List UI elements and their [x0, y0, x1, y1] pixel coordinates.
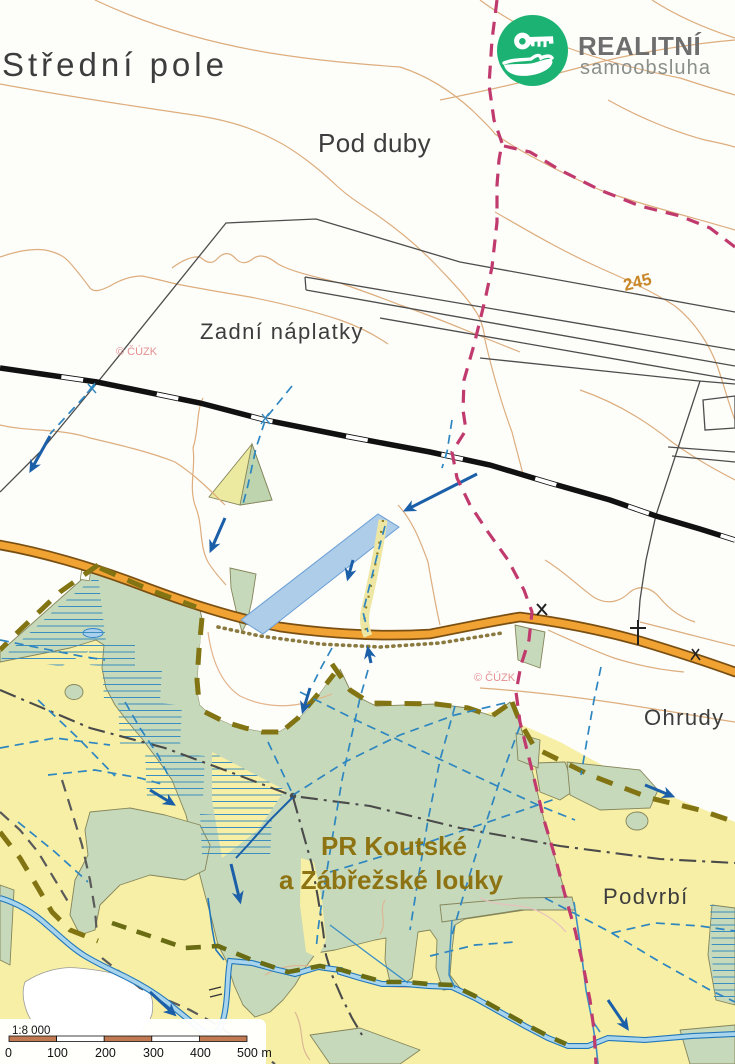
svg-text:300: 300: [143, 1046, 164, 1060]
svg-text:Zadní náplatky: Zadní náplatky: [200, 319, 364, 344]
svg-text:© ČÚZK: © ČÚZK: [474, 671, 516, 684]
svg-text:© ČÚZK: © ČÚZK: [116, 345, 158, 358]
svg-text:Pod duby: Pod duby: [318, 128, 431, 158]
svg-text:200: 200: [95, 1046, 116, 1060]
svg-text:samoobsluha: samoobsluha: [580, 57, 711, 79]
svg-text:500 m: 500 m: [237, 1046, 272, 1060]
svg-text:100: 100: [47, 1046, 68, 1060]
svg-text:400: 400: [190, 1046, 211, 1060]
svg-text:Ohrudy: Ohrudy: [644, 705, 725, 730]
svg-text:a Zábřežské louky: a Zábřežské louky: [279, 865, 504, 895]
svg-text:0: 0: [5, 1046, 12, 1060]
svg-text:1:8 000: 1:8 000: [12, 1025, 50, 1037]
svg-text:PR Koutské: PR Koutské: [321, 831, 467, 861]
svg-text:Střední pole: Střední pole: [2, 46, 228, 83]
svg-text:Podvrbí: Podvrbí: [603, 884, 689, 909]
